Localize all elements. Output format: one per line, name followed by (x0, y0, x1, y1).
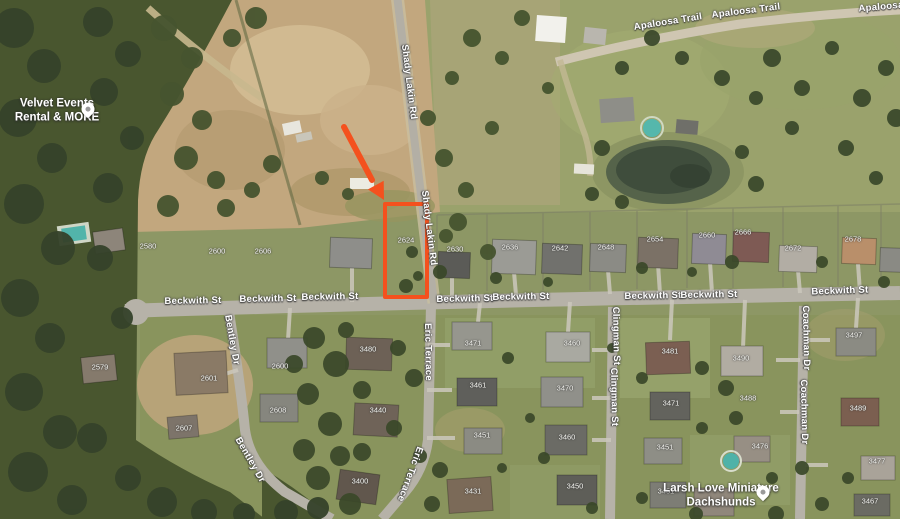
house-number: 3490 (733, 354, 750, 363)
house-number: 3451 (657, 443, 674, 452)
pin-dot (759, 489, 766, 496)
street-label-beckwith-st: Beckwith St (436, 293, 493, 305)
house-number: 2678 (845, 235, 862, 244)
house-number: 2608 (270, 406, 287, 415)
house-number: 3431 (465, 487, 482, 496)
house-number: 3461 (470, 381, 487, 390)
street-label-beckwith-st: Beckwith St (624, 290, 681, 302)
house-number: 2607 (176, 424, 193, 433)
house-number: 2600 (209, 247, 226, 256)
street-label-beckwith-st: Beckwith St (164, 295, 221, 307)
house-number: 2672 (785, 244, 802, 253)
house-number: 3471 (663, 399, 680, 408)
house-number: 2606 (255, 247, 272, 256)
street-label-coachman-dr: Coachman Dr (800, 305, 812, 370)
house-number: 2600 (272, 362, 289, 371)
street-label-clingman-st: Clingman St (610, 307, 622, 366)
street-label-beckwith-st: Beckwith St (492, 291, 549, 303)
house-number: 3460 (559, 433, 576, 442)
house-number: 2660 (699, 231, 716, 240)
satellite-map-canvas[interactable]: Apaloosa Trail Apaloosa Trail Apaloosa T… (0, 0, 900, 519)
house-number: 2630 (447, 245, 464, 254)
house-number: 3480 (360, 345, 377, 354)
house-number: 2648 (598, 243, 615, 252)
house-number: 2642 (552, 244, 569, 253)
street-label-beckwith-st: Beckwith St (811, 285, 869, 298)
house-number: 2666 (735, 228, 752, 237)
house-number: 3488 (740, 394, 757, 403)
house-number: 3476 (752, 442, 769, 451)
house-number: 3400 (352, 477, 369, 486)
house-number: 3451 (474, 431, 491, 440)
house-number: 3450 (567, 482, 584, 491)
house-number: 3471 (465, 339, 482, 348)
street-label-coachman-dr: Coachman Dr (798, 379, 810, 444)
house-number: 2601 (201, 374, 218, 383)
street-label-clingman-st: Clingman St (608, 368, 620, 427)
house-number: 2654 (647, 235, 664, 244)
house-number: 3477 (869, 457, 886, 466)
street-label-beckwith-st: Beckwith St (239, 293, 296, 305)
house-number: 3460 (564, 339, 581, 348)
house-number: 3470 (557, 384, 574, 393)
house-number: 2580 (140, 242, 157, 251)
house-number: 3467 (862, 497, 879, 506)
house-number: 3481 (662, 347, 679, 356)
house-number: 2579 (92, 363, 109, 372)
street-label-eric-terrace: Eric Terrace (422, 323, 434, 381)
pin-dot (84, 106, 91, 113)
street-label-beckwith-st: Beckwith St (301, 291, 358, 303)
house-number: 2636 (502, 243, 519, 252)
house-number: 3440 (370, 406, 387, 415)
house-number: 3497 (846, 331, 863, 340)
house-number: 2624 (398, 236, 415, 245)
house-number: 3489 (850, 404, 867, 413)
street-label-beckwith-st: Beckwith St (680, 289, 737, 301)
